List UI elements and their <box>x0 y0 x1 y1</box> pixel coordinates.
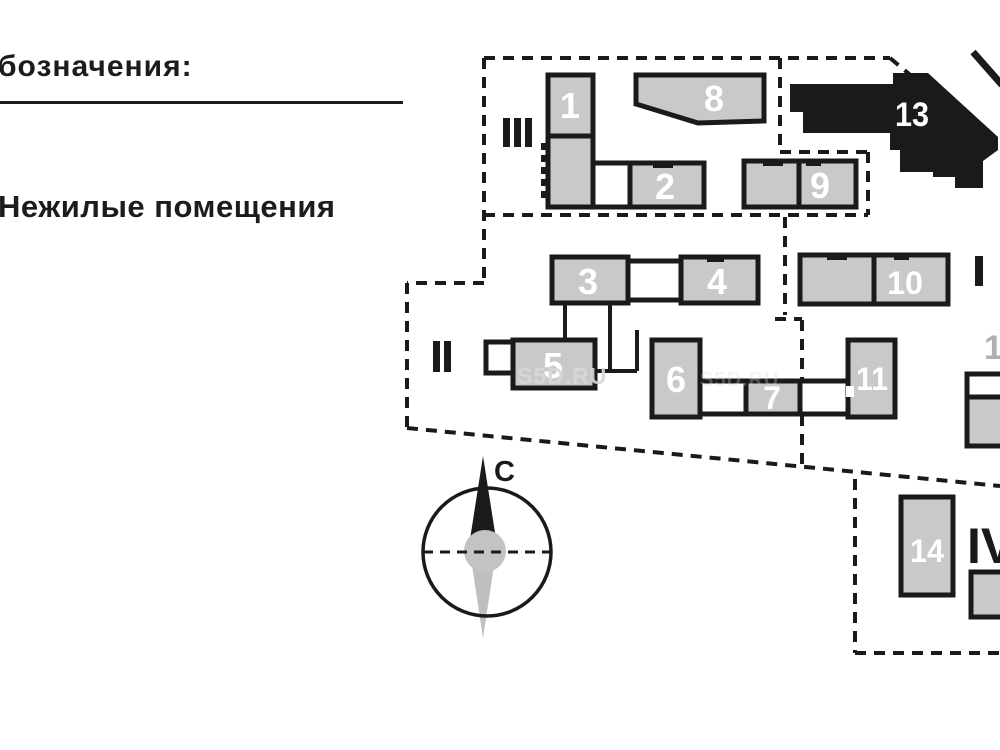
building-8-number: 8 <box>704 78 724 119</box>
building-10-number: 10 <box>887 265 923 301</box>
compass-north-label: С <box>494 456 515 488</box>
marker-iii <box>503 118 532 147</box>
marker-ii <box>433 341 451 372</box>
site-plan-page: бозначения: Нежилые помещения <box>0 0 1000 750</box>
building-11[interactable]: 11 <box>846 340 895 417</box>
building-right-edge[interactable] <box>967 374 1000 446</box>
building-bottom-right-edge[interactable] <box>971 572 1000 617</box>
building-6-number: 6 <box>666 359 686 400</box>
building-8[interactable]: 8 <box>636 75 764 123</box>
building-9-number: 9 <box>810 165 830 206</box>
marker-iv: IV <box>967 518 1000 574</box>
watermark-text: S5D.RU <box>517 363 607 389</box>
building-3-4-white-section <box>628 261 681 300</box>
building-1-number: 1 <box>560 85 580 126</box>
building-14[interactable]: 14 <box>901 497 953 595</box>
marker-i <box>975 256 983 286</box>
building-11-number: 11 <box>856 361 888 397</box>
site-plan: 1 2 8 9 13 3 <box>0 0 1000 750</box>
watermark-text-faint: S5D.RU <box>700 369 779 391</box>
building-3-number: 3 <box>578 261 598 302</box>
building-6[interactable]: 6 <box>652 340 700 417</box>
building-1[interactable]: 1 <box>541 75 593 207</box>
building-2[interactable]: 2 <box>593 161 704 207</box>
building-3[interactable]: 3 <box>552 257 628 303</box>
building-4-number: 4 <box>707 261 727 302</box>
road-fragment <box>973 52 1000 85</box>
building-4[interactable]: 4 <box>681 255 758 303</box>
building-13-number: 13 <box>895 96 929 134</box>
building-9[interactable]: 9 <box>744 159 856 207</box>
building-14-number: 14 <box>910 533 944 569</box>
building-2-number: 2 <box>655 166 675 207</box>
edge-building-number: 1 <box>984 329 1000 367</box>
compass-rose: С <box>423 456 551 638</box>
building-10[interactable]: 10 <box>800 253 948 304</box>
